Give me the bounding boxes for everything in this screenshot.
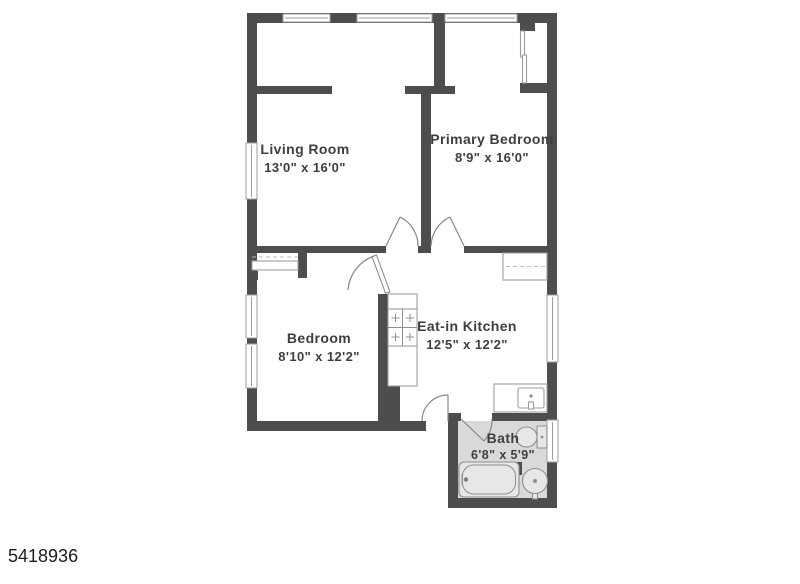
wall-bath-bottom — [448, 498, 557, 508]
wall-bath-top-left — [448, 413, 461, 421]
window-icon — [357, 14, 432, 22]
bedroom-dimensions: 8'10" x 12'2" — [278, 349, 360, 364]
primary-bedroom-door-swing-icon — [431, 217, 464, 246]
wall-closet-stub-bottom — [520, 83, 547, 93]
bath-dimensions: 6'8" x 5'9" — [471, 448, 535, 462]
kitchen-closet-icon — [503, 253, 547, 280]
window-icon — [547, 295, 558, 362]
window-icon — [246, 344, 257, 388]
primary-closet-sliding-door-icon — [521, 31, 527, 83]
wall-middle-stub — [418, 246, 431, 253]
living-room-door-swing-icon — [386, 217, 418, 246]
wall-bath-left — [448, 413, 458, 508]
bedroom-closet-rod-icon — [252, 257, 298, 270]
wall-divider-tee — [405, 86, 455, 94]
wall-bedroom-closet-nub — [247, 271, 258, 280]
floor-plan-image: Living Room 13'0" x 16'0" Primary Bedroo… — [0, 0, 800, 584]
primary-bedroom-dimensions: 8'9" x 16'0" — [455, 150, 529, 165]
wall-divider-upper — [434, 23, 445, 88]
window-icon — [445, 14, 517, 22]
living-room-label: Living Room — [260, 141, 349, 157]
window-icon — [246, 143, 257, 199]
kitchen-sink-icon — [494, 384, 547, 412]
living-room-dimensions: 13'0" x 16'0" — [264, 160, 346, 175]
kitchen-back-door-swing-icon — [422, 395, 448, 421]
floor-plan-page: Living Room 13'0" x 16'0" Primary Bedroo… — [0, 0, 800, 584]
wall-middle-left — [247, 246, 386, 253]
wall-bedroom-closet-stub — [298, 253, 307, 278]
window-icon — [246, 295, 257, 338]
wall-bedroom-bottom — [247, 421, 426, 431]
wall-living-stub — [247, 86, 332, 94]
bedroom-door-swing-icon — [348, 255, 390, 293]
wall-divider-lower — [421, 94, 431, 246]
eat-in-kitchen-dimensions: 12'5" x 12'2" — [426, 337, 508, 352]
wall-middle-right — [464, 246, 557, 253]
bedroom-label: Bedroom — [287, 330, 351, 346]
window-icon — [283, 14, 330, 22]
wall-closet-stub-top — [520, 23, 535, 31]
toilet-icon — [516, 426, 547, 448]
window-icon — [547, 420, 558, 462]
bathtub-icon — [459, 462, 519, 497]
primary-bedroom-label: Primary Bedroom — [430, 131, 553, 147]
stove-icon — [388, 309, 417, 346]
eat-in-kitchen-label: Eat-in Kitchen — [417, 318, 517, 334]
bath-label: Bath — [487, 430, 520, 446]
listing-id: 5418936 — [8, 546, 78, 566]
